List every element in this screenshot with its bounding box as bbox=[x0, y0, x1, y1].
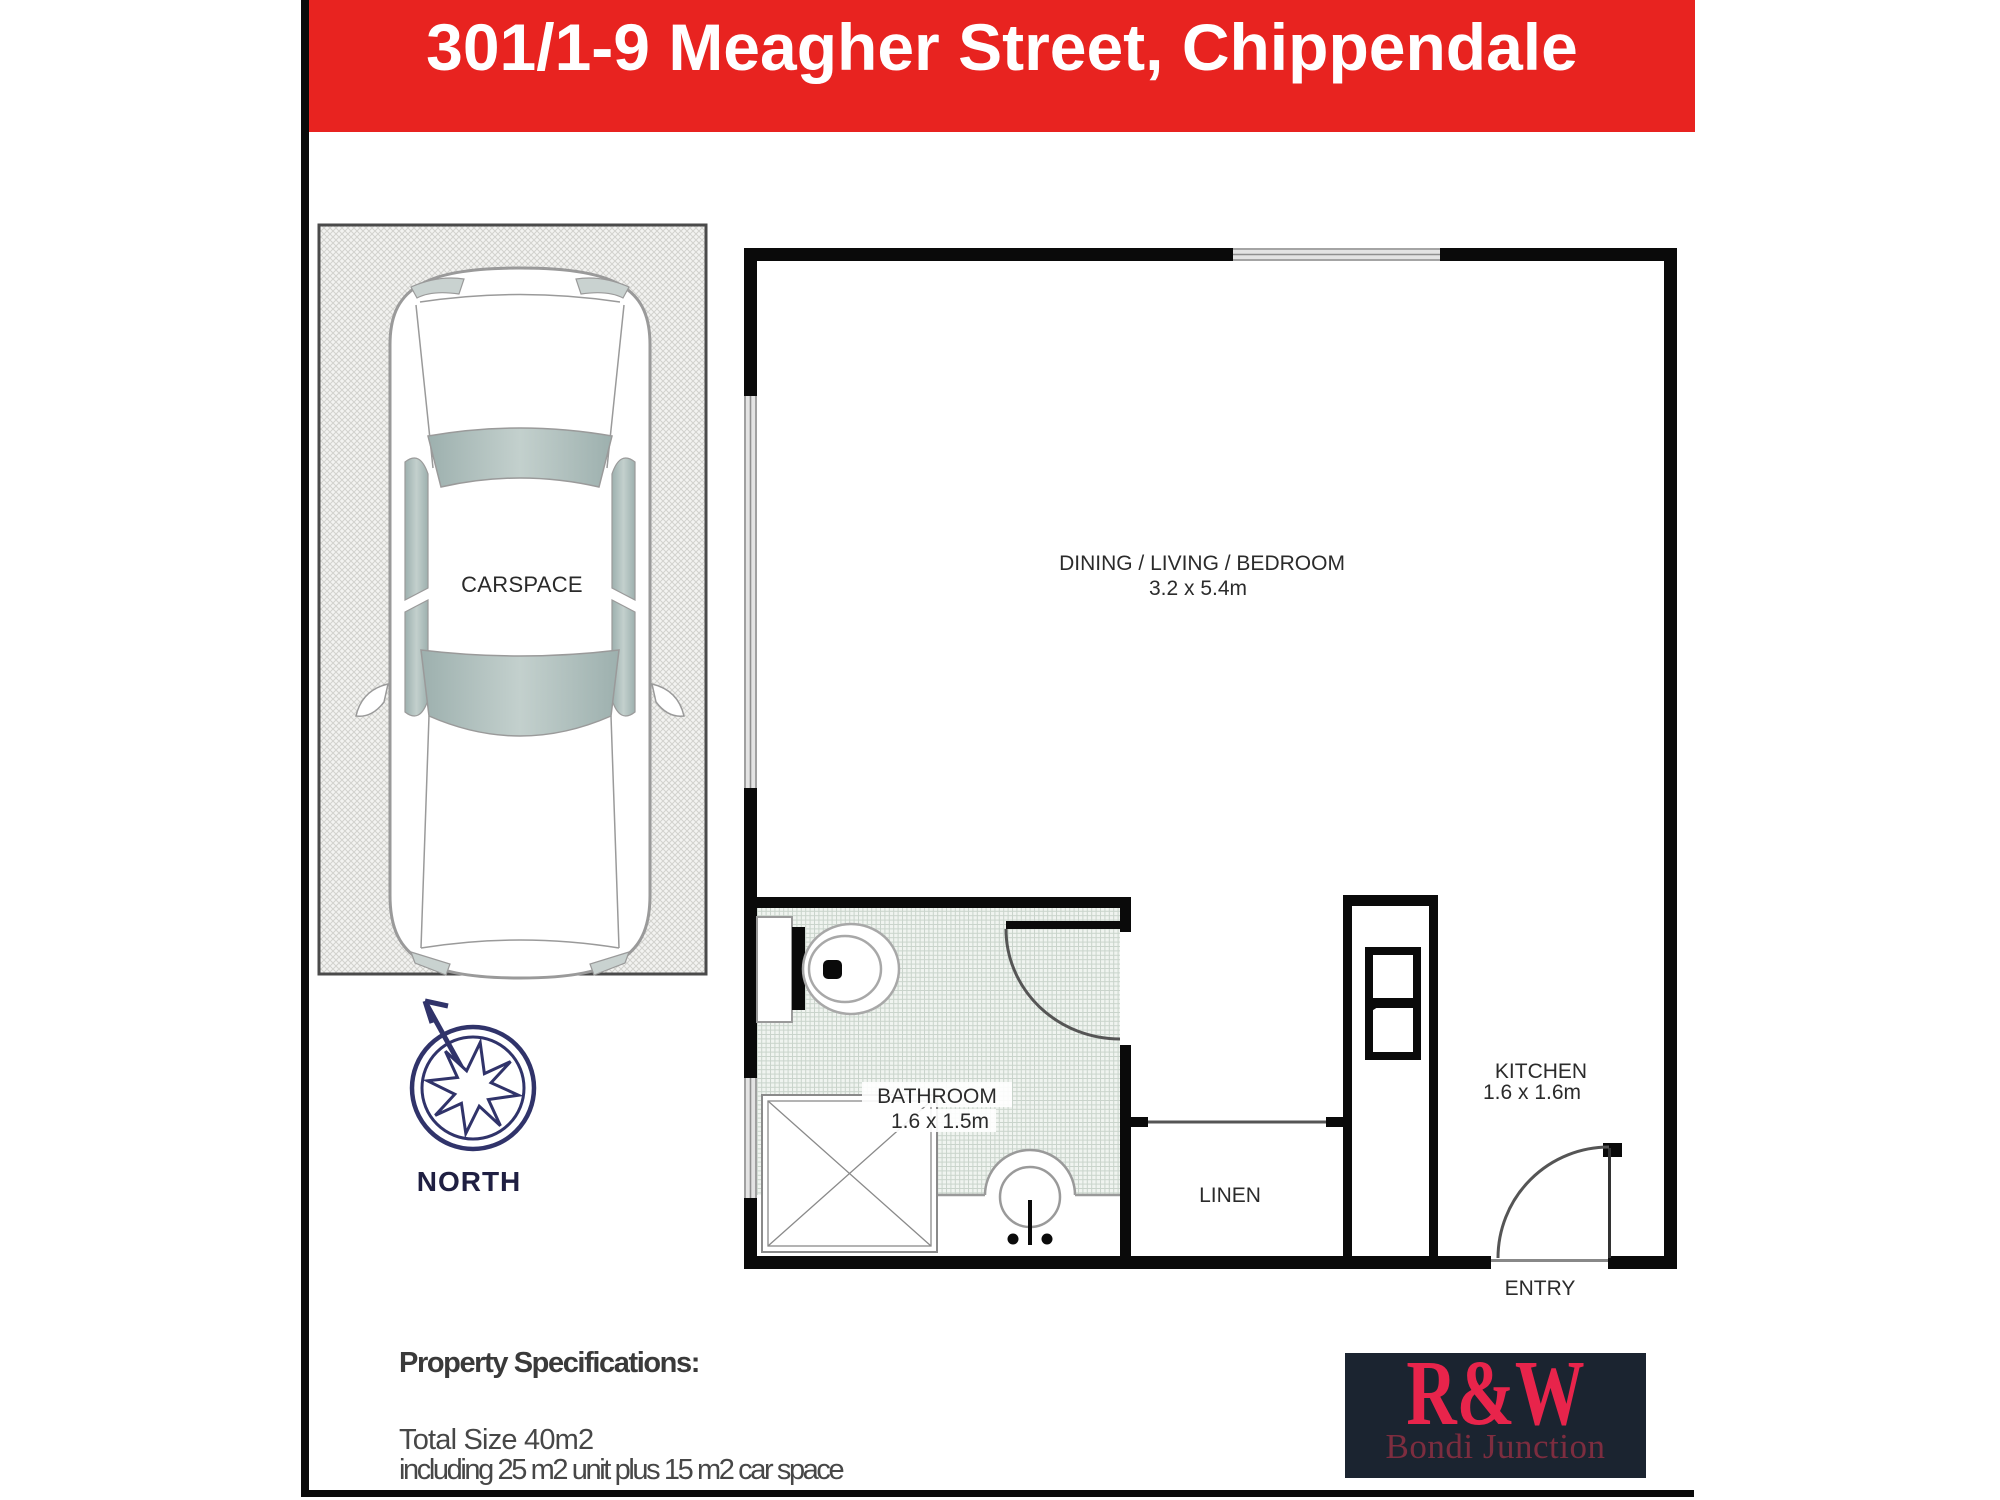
svg-text:LINEN: LINEN bbox=[1199, 1184, 1261, 1207]
svg-text:DINING / LIVING / BEDROOM: DINING / LIVING / BEDROOM bbox=[1059, 552, 1345, 575]
svg-text:3.2 x 5.4m: 3.2 x 5.4m bbox=[1149, 577, 1247, 600]
svg-text:KITCHEN: KITCHEN bbox=[1495, 1060, 1587, 1083]
svg-text:NORTH: NORTH bbox=[417, 1166, 522, 1197]
svg-text:1.6 x 1.5m: 1.6 x 1.5m bbox=[891, 1110, 989, 1133]
svg-text:1.6 x 1.6m: 1.6 x 1.6m bbox=[1483, 1081, 1581, 1104]
svg-text:ENTRY: ENTRY bbox=[1505, 1277, 1576, 1300]
svg-text:BATHROOM: BATHROOM bbox=[877, 1085, 997, 1108]
svg-text:CARSPACE: CARSPACE bbox=[461, 572, 583, 597]
